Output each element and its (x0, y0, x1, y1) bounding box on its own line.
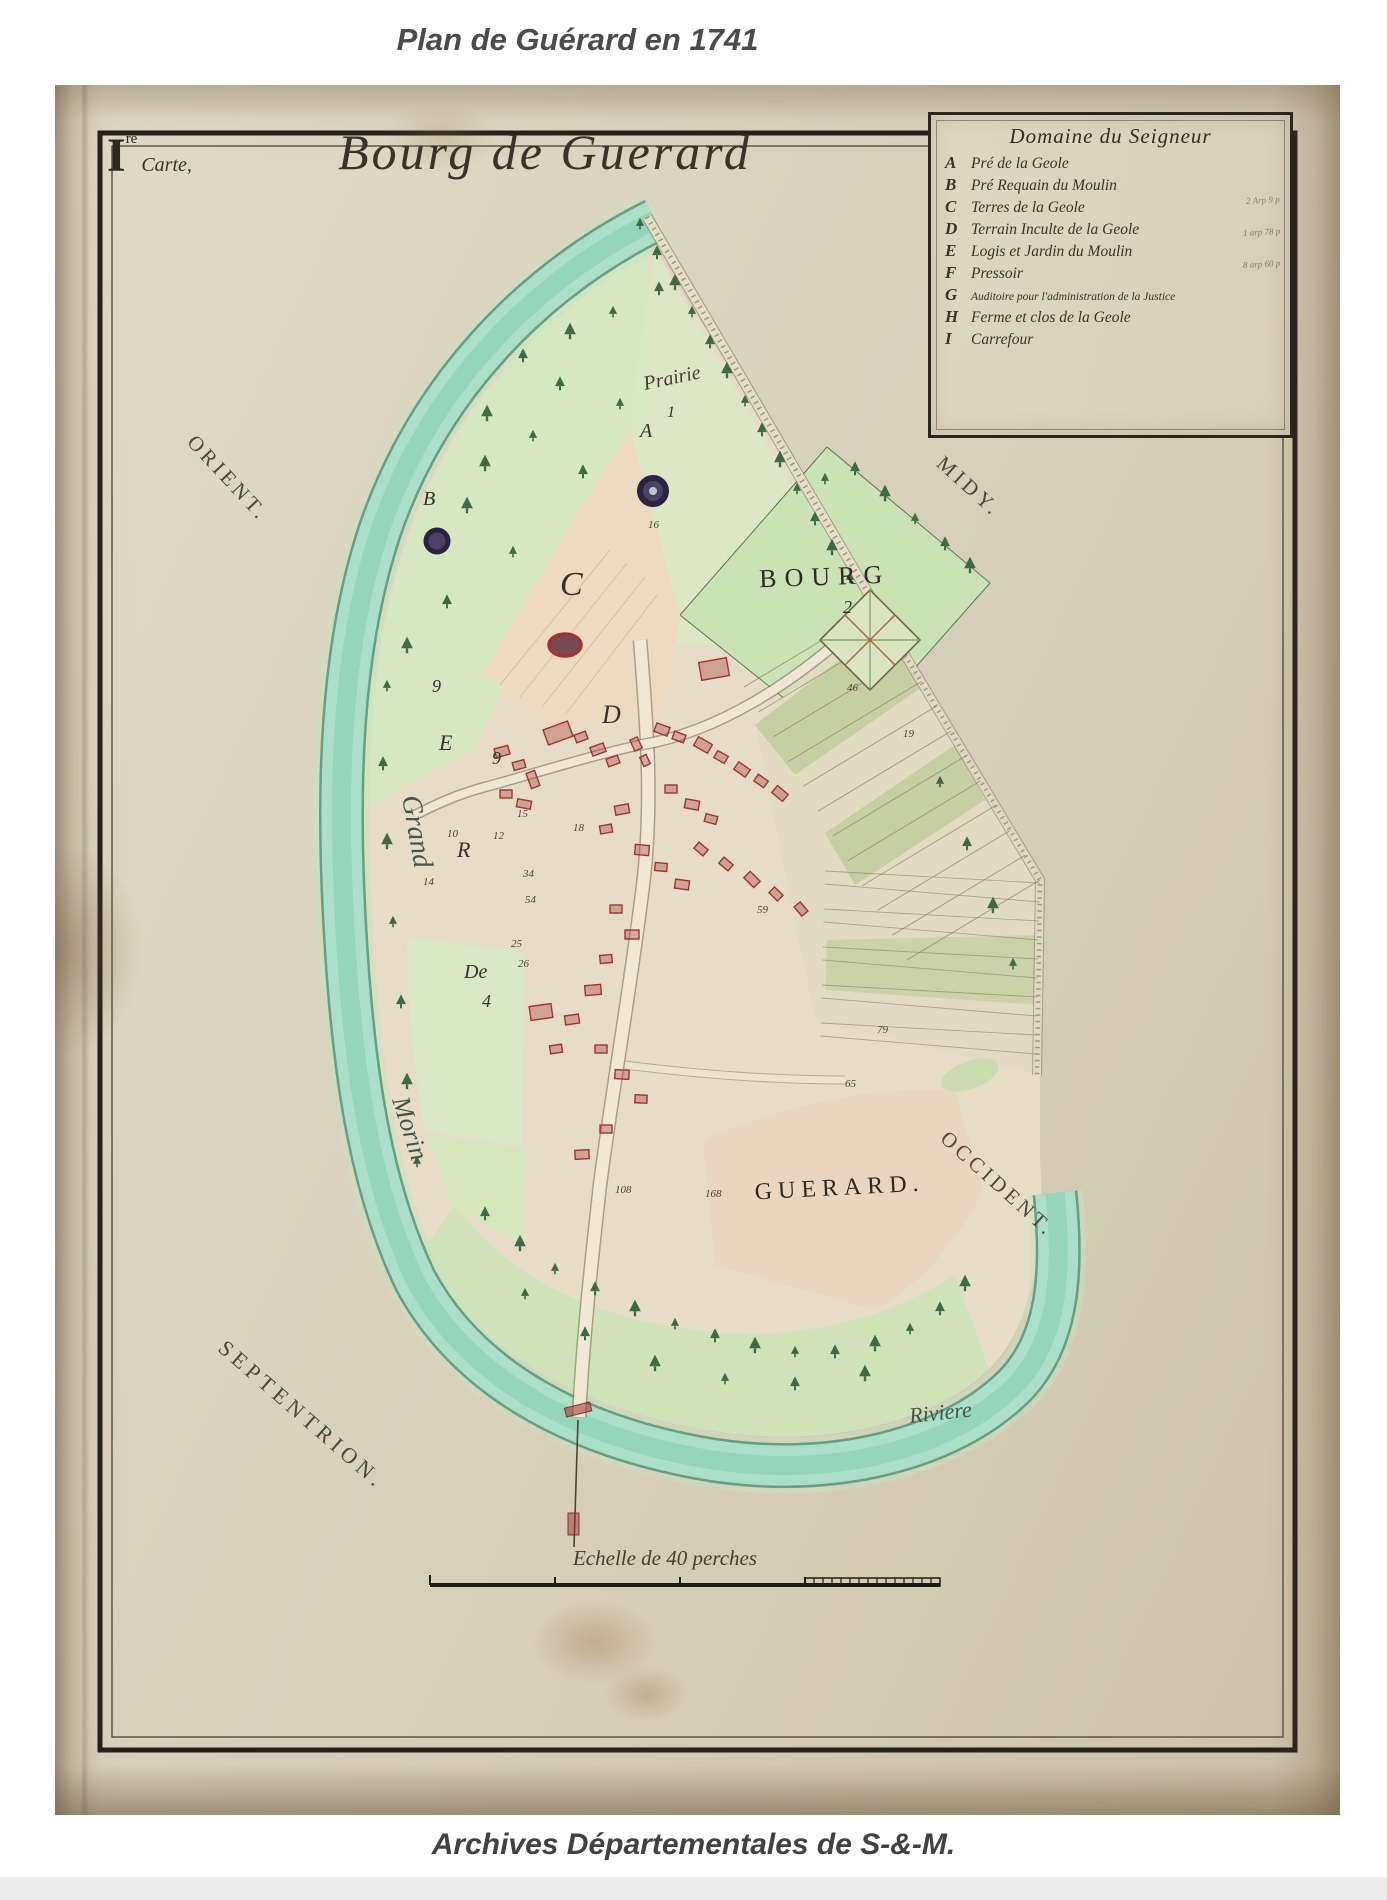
legend-entry: E Logis et Jardin du Moulin (931, 240, 1290, 262)
svg-text:108: 108 (615, 1184, 632, 1196)
svg-text:65: 65 (845, 1078, 857, 1090)
scale-label: Echelle de 40 perches (572, 1546, 757, 1570)
page-title: Plan de Guérard en 1741 (0, 22, 1155, 58)
map-title: Bourg de Guerard (225, 123, 865, 181)
svg-text:19: 19 (903, 728, 915, 740)
svg-text:BOURG: BOURG (759, 560, 891, 594)
svg-text:59: 59 (757, 904, 769, 916)
scale-bar: Echelle de 40 perches (430, 1546, 940, 1586)
legend-entry: I Carrefour (931, 328, 1290, 350)
legend-entry: F Pressoir (931, 262, 1290, 284)
svg-text:14: 14 (423, 876, 435, 888)
svg-text:54: 54 (525, 894, 537, 906)
svg-text:79: 79 (877, 1024, 889, 1036)
legend-entry: A Pré de la Geole (931, 152, 1290, 174)
legend-entry: C Terres de la Geole (931, 196, 1290, 218)
folio-word: Carte, (141, 154, 192, 176)
svg-text:9: 9 (492, 748, 501, 768)
folio-numeral: I (107, 129, 126, 182)
svg-text:9: 9 (432, 676, 441, 696)
source-caption: Archives Départementales de S-&-M. (0, 1828, 1387, 1862)
svg-text:De: De (463, 961, 487, 983)
svg-text:16: 16 (648, 519, 660, 531)
svg-text:46: 46 (847, 682, 859, 694)
svg-text:26: 26 (518, 958, 530, 970)
map-photo: Echelle de 40 perches Prairie BOURG 2 GU… (55, 85, 1340, 1815)
bottom-strip (0, 1877, 1387, 1900)
legend-entry: B Pré Requain du Moulin (931, 174, 1290, 196)
svg-text:25: 25 (511, 938, 523, 950)
svg-text:15: 15 (517, 808, 529, 820)
svg-text:C: C (560, 566, 583, 603)
legend-entry: H Ferme et clos de la Geole (931, 306, 1290, 328)
svg-text:4: 4 (482, 991, 491, 1011)
legend-area-note: 2 Arp 9 p (1246, 194, 1280, 206)
legend-title: Domaine du Seigneur (937, 124, 1284, 149)
legend-area-note: 8 arp 60 p (1242, 258, 1280, 270)
svg-text:2: 2 (843, 597, 852, 617)
legend-box: Domaine du Seigneur A Pré de la Geole B … (928, 112, 1293, 438)
legend-area-note: 1 arp 78 p (1242, 226, 1280, 238)
svg-text:B: B (423, 488, 435, 510)
svg-text:12: 12 (493, 830, 505, 842)
svg-text:168: 168 (705, 1188, 722, 1200)
svg-text:A: A (638, 420, 653, 442)
svg-text:R: R (456, 837, 471, 862)
folio-superscript: re (126, 131, 138, 147)
svg-text:34: 34 (522, 868, 535, 880)
legend-entry: D Terrain Inculte de la Geole (931, 218, 1290, 240)
svg-text:18: 18 (573, 822, 585, 834)
svg-text:E: E (438, 730, 453, 755)
svg-text:1: 1 (667, 404, 675, 421)
svg-text:10: 10 (447, 828, 459, 840)
folio-marker: IreCarte, (107, 131, 192, 180)
svg-text:D: D (601, 700, 621, 729)
legend-entry: G Auditoire pour l'administration de la … (931, 284, 1290, 306)
